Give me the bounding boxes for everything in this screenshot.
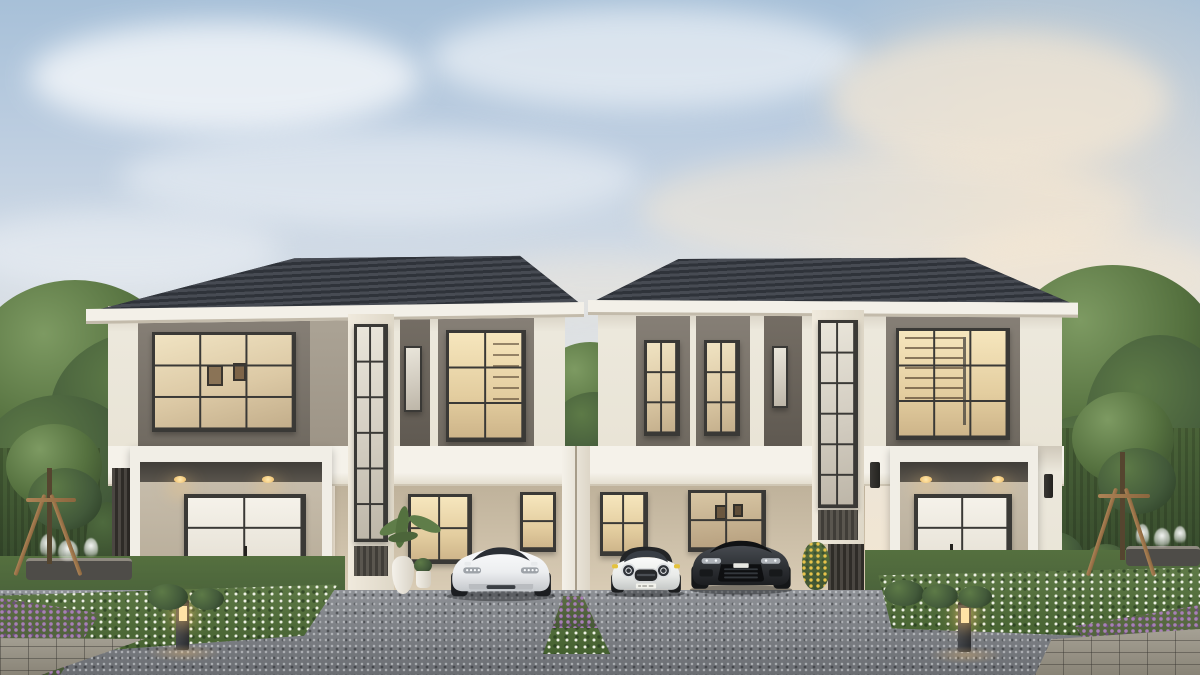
right-house-slit-window xyxy=(772,346,788,408)
headlight xyxy=(761,558,780,564)
headlight xyxy=(702,558,721,564)
side-mirror xyxy=(531,562,538,566)
headlight xyxy=(622,564,635,577)
bollard-lamp-light xyxy=(179,606,187,621)
side-mirror xyxy=(464,562,471,566)
cloud xyxy=(120,130,640,225)
right-house-tall-window xyxy=(644,340,680,436)
right-stair-tower xyxy=(812,310,864,544)
right-house-library-window xyxy=(896,328,1010,440)
yellow-mirror-cap xyxy=(612,564,618,568)
timber-crossbar xyxy=(26,498,76,502)
divider-seam xyxy=(575,446,577,598)
cloud xyxy=(30,22,420,132)
yellow-mirror-cap xyxy=(674,564,680,568)
window-mullions xyxy=(899,331,1007,437)
canopy-downlight xyxy=(174,476,186,483)
left-house-infill-panel xyxy=(310,318,348,450)
bollard-lamp-light xyxy=(961,608,969,623)
side-intake xyxy=(769,569,782,576)
window-mullions xyxy=(707,343,737,433)
left-house-bedroom-window xyxy=(152,332,296,432)
window-mullions xyxy=(449,333,523,439)
yellow-bloom-shrub xyxy=(802,542,830,590)
porch-shrub xyxy=(958,586,992,608)
lamp-ground-glow xyxy=(928,646,1004,664)
wall-sconce xyxy=(1044,474,1053,498)
window-mullions xyxy=(821,323,855,505)
left-double-height-window xyxy=(354,324,388,542)
left-stair-tower xyxy=(348,314,394,600)
divider-column xyxy=(562,446,590,598)
canopy-downlight xyxy=(920,476,932,483)
left-house-study-window xyxy=(446,330,526,442)
air-intake xyxy=(487,585,516,589)
porch-shrub xyxy=(922,584,958,608)
lamp-ground-glow xyxy=(146,644,222,662)
porch-shrub xyxy=(190,588,224,610)
white-mini-hatchback xyxy=(600,522,692,600)
window-mullions xyxy=(647,343,677,433)
staked-tree-trunk xyxy=(1120,452,1125,560)
side-intake xyxy=(700,569,713,576)
cloud xyxy=(430,8,860,108)
porch-canopy-soffit xyxy=(140,462,322,482)
right-double-height-window xyxy=(818,320,858,508)
wall-sconce xyxy=(870,462,880,488)
white-pot xyxy=(416,571,431,588)
left-house-slit-window xyxy=(404,346,422,412)
fountain-splash xyxy=(1174,526,1186,546)
white-sports-sedan xyxy=(440,514,562,603)
canopy-downlight xyxy=(262,476,274,483)
canopy-downlight xyxy=(992,476,1004,483)
exterior-render-scene: Dusk rendering of twin modern two-story … xyxy=(0,0,1200,675)
fountain-splash xyxy=(1154,528,1170,550)
dark-gray-suv xyxy=(682,510,800,597)
staked-tree-trunk xyxy=(47,468,52,564)
window-mullions xyxy=(357,327,385,539)
license-plate xyxy=(733,563,748,568)
window-mullions xyxy=(155,335,293,429)
cloud xyxy=(830,30,1170,170)
headlight xyxy=(657,564,670,577)
timber-crossbar xyxy=(1098,494,1150,498)
porch-shrub xyxy=(148,584,188,610)
porch-shrub xyxy=(884,580,924,606)
louver-spandrel xyxy=(818,510,858,540)
right-house-tall-window xyxy=(704,340,740,436)
louver-spandrel xyxy=(354,546,388,576)
fountain-splash xyxy=(84,538,98,560)
